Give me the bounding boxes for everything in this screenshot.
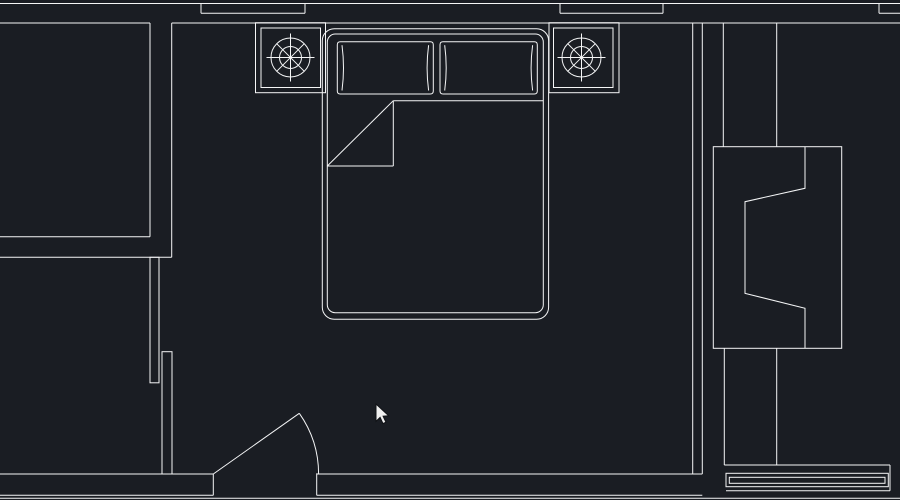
floorplan-svg — [0, 0, 900, 500]
pillow-right-seam-right — [531, 45, 533, 90]
wall-stub-upper — [150, 257, 159, 383]
left-room — [0, 23, 172, 257]
door-swing-arc — [299, 413, 318, 474]
sheet-fold-diagonal — [327, 101, 393, 166]
pillow-left-seam-left — [342, 45, 344, 90]
top-wall — [0, 4, 900, 24]
pillow-left-outline — [337, 42, 433, 94]
model-space-viewport[interactable] — [0, 0, 900, 500]
sill-outer-rect — [726, 473, 888, 486]
wardrobe-outline — [713, 147, 841, 349]
cursor-arrow-icon — [376, 404, 389, 424]
pillow-left — [337, 42, 433, 94]
lamp-symbol-left — [267, 34, 315, 82]
partition-wall-stubs — [150, 257, 172, 474]
wall-stub-lower — [162, 352, 172, 474]
pillow-right-seam-left — [445, 45, 447, 90]
wardrobe — [713, 147, 841, 349]
lamp-symbol-right — [558, 34, 606, 82]
mouse-cursor — [376, 404, 389, 424]
door — [213, 413, 318, 474]
bed-outline-outer — [322, 29, 548, 320]
pillow-right — [440, 42, 537, 94]
pillow-left-seam-right — [427, 45, 429, 90]
wardrobe-door-panel — [745, 147, 805, 349]
right-wall — [693, 23, 777, 474]
door-leaf — [213, 413, 299, 474]
bed — [322, 29, 548, 320]
sill-inner-rect — [729, 477, 885, 483]
pillow-right-outline — [440, 42, 537, 94]
window-sill-bottom-right — [724, 465, 890, 491]
bed-outline-inner — [327, 34, 543, 313]
